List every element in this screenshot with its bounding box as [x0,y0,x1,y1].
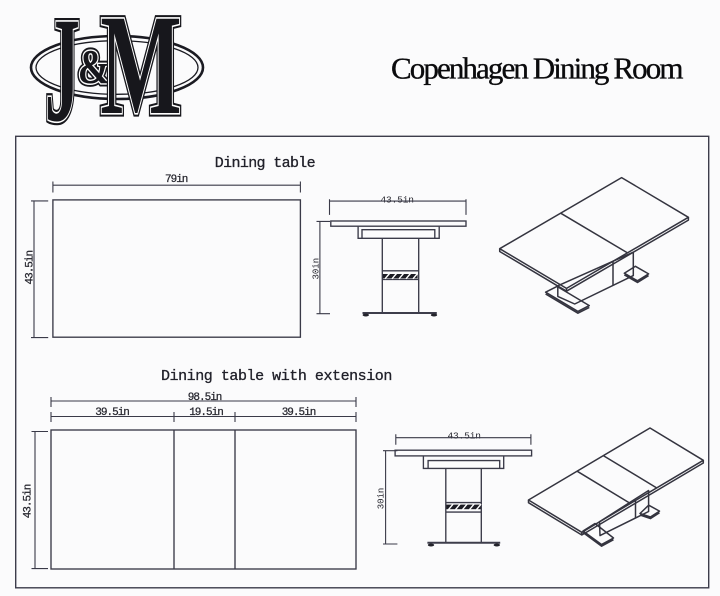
svg-text:79in: 79in [165,174,188,186]
svg-text:43.5in: 43.5in [448,431,481,442]
svg-text:39.5in: 39.5in [95,407,129,419]
svg-text:M: M [100,0,181,145]
svg-text:43.5in: 43.5in [25,250,37,284]
svg-text:J: J [45,0,80,153]
svg-text:98.5in: 98.5in [188,392,222,404]
svg-text:19.5in: 19.5in [189,407,223,419]
svg-text:Dining table with extension: Dining table with extension [161,368,392,385]
svg-text:39.5in: 39.5in [282,407,316,419]
svg-text:Copenhagen Dining Room: Copenhagen Dining Room [391,51,683,86]
svg-text:30in: 30in [376,488,386,510]
svg-text:43.5in: 43.5in [381,195,414,206]
svg-text:43.5in: 43.5in [23,484,35,518]
svg-text:Dining table: Dining table [215,155,316,172]
